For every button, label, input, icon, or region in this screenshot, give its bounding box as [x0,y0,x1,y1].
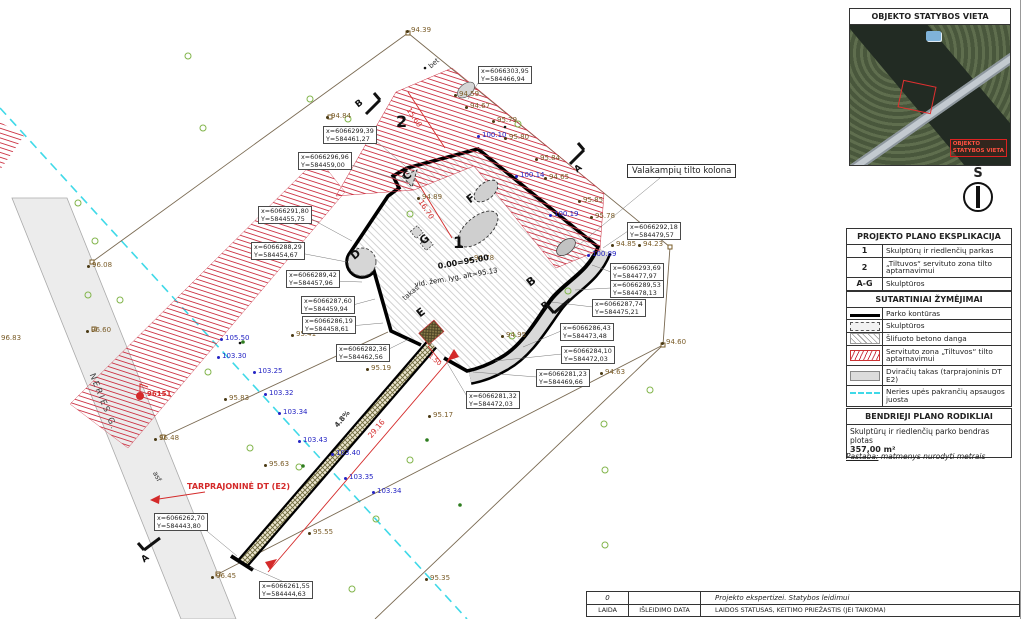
coord-y: Y=584473,48 [563,332,611,340]
spot-elevation: 95.55 [313,528,333,536]
legend-label: Dviračių takas (tarprajoninis DT E2) [883,366,1011,385]
coord-y: Y=584461,27 [326,135,374,143]
coord-y: Y=584457,96 [289,279,337,287]
north-arrow: Š [963,166,993,212]
explication-legend-table: PROJEKTO PLANO EKSPLIKACIJA 1 Skulptūrų … [846,228,1012,407]
coord-y: Y=584462,56 [339,353,387,361]
coord-y: Y=584466,94 [481,75,529,83]
explication-label: „Tiltuvos“ servituto zona tilto aptarnav… [883,258,1011,277]
park-contour-symbol [847,308,883,320]
coord-y: Y=584454,67 [254,251,302,259]
laida-header: LAIDA [587,605,629,617]
coord-x: x=6066291,80 [261,207,309,215]
explication-row: A-G Skulptūros [847,278,1011,291]
coord-y: Y=584469,66 [539,378,587,386]
coord-y: Y=584479,57 [630,231,678,239]
coord-x: x=6066287,60 [304,297,352,305]
spot-elevation: 95.78 [595,212,615,220]
coord-callout: x=6066284,10Y=584472,03 [561,346,615,364]
coord-callout: x=6066281,32Y=584472,03 [466,391,520,409]
building-in-photo [926,31,941,41]
coord-x: x=6066262,70 [157,514,205,522]
legend-row: Neries upės pakrančių apsaugos juosta [847,386,1011,405]
explication-label: Skulptūrų ir riedlenčių parkas [883,245,1011,257]
note: Pastaba: matmenys nurodyti metrais [846,452,985,461]
indicators-box: BENDRIEJI PLANO RODIKLIAI Skulptūrų ir r… [846,408,1012,458]
revision-number: 0 [587,592,629,604]
coord-x: x=6066286,19 [305,317,353,325]
spot-elevation: 95.17 [433,411,453,419]
spot-elevation-blue: 103.32 [269,389,294,397]
coord-callout: x=6066293,69Y=584477,97 [610,263,664,281]
coord-x: x=6066261,55 [262,582,310,590]
inset-title: OBJEKTO STATYBOS VIETA [850,9,1010,25]
spot-elevation: 96.83 [1,334,21,342]
north-circle [963,182,993,212]
revision-date-empty [629,592,701,604]
coord-callout: x=6066299,39Y=584461,27 [323,126,377,144]
spot-elevation: 94.95 [506,331,526,339]
servitude-hatch-symbol [847,346,883,365]
coord-x: x=6066281,23 [539,370,587,378]
dim-arrow-bottom [265,559,277,570]
coord-y: Y=584459,00 [301,161,349,169]
site-outline-in-photo [897,80,936,114]
legend-label: Skulptūros [883,320,1011,332]
coord-callout: x=6066303,95Y=584466,94 [478,66,532,84]
coord-y: Y=584458,61 [305,325,353,333]
coord-callout: x=6066289,53Y=584478,13 [610,280,664,298]
location-inset-box: OBJEKTO STATYBOS VIETA OBJEKTO STATYBOS … [849,8,1011,166]
spot-elevation-blue: 103.40 [336,449,361,457]
spot-elevation: 96.08 [92,261,112,269]
coord-x: x=6066289,42 [289,271,337,279]
explication-key: A-G [847,278,883,290]
concrete-hatch-symbol [847,333,883,345]
indicators-line1: Skulptūrų ir riedlenčių parko bendras pl… [847,425,1011,445]
aerial-photo: OBJEKTO STATYBOS VIETA [850,25,1010,165]
coord-callout: x=6066291,80Y=584455,75 [258,206,312,224]
spot-elevation-blue: 100.89 [592,250,617,258]
coord-callout: x=6066262,70Y=584443,80 [154,513,208,531]
spot-elevation: 94.59 [459,90,479,98]
coord-x: x=6066282,36 [339,345,387,353]
spot-elevation-blue: 105.50 [225,334,250,342]
legend-row: Skulptūros [847,320,1011,333]
spot-elevation-blue: 103.34 [283,408,308,416]
coord-callout: x=6066282,36Y=584462,56 [336,344,390,362]
spot-elevation-blue: 100.10 [482,131,507,139]
coord-x: x=6066296,96 [301,153,349,161]
spot-elevation: 94.63 [605,368,625,376]
coord-x: x=6066281,32 [469,392,517,400]
explication-label: Skulptūros [883,278,1011,290]
coord-callout: x=6066296,96Y=584459,00 [298,152,352,170]
revision-description: Projekto ekspertizei. Statybos leidimui [701,592,1019,604]
zone-1-label: 1 [453,233,464,252]
coord-x: x=6066289,53 [613,281,661,289]
coord-y: Y=584477,97 [613,272,661,280]
legend-label: Neries upės pakrančių apsaugos juosta [883,386,1011,405]
sculpture-symbol [847,320,883,332]
site-tag-line1: OBJEKTO [953,141,1004,148]
spot-elevation-blue: 103.43 [303,436,328,444]
zone-2-label: 2 [396,112,407,131]
coord-x: x=6066286,43 [563,324,611,332]
spot-elevation: 95.85 [583,196,603,204]
note-label: Pastaba: [846,452,878,461]
revision-description-text: Projekto ekspertizei. Statybos leidimui [715,594,849,602]
coord-y: Y=584443,80 [157,522,205,530]
legend-label: Servituto zona „Tiltuvos“ tilto aptarnav… [883,346,1011,365]
coord-y: Y=584472,03 [469,400,517,408]
spot-elevation: 94.65 [549,173,569,181]
geodetic-point-label: 96151 [147,390,171,398]
red-hatch-sliver [0,122,24,170]
explication-row: 2 „Tiltuvos“ servituto zona tilto aptarn… [847,258,1011,278]
north-label: Š [963,166,993,181]
coord-callout: x=6066292,18Y=584479,57 [627,222,681,240]
coord-x: x=6066284,10 [564,347,612,355]
title-block: 0 Projekto ekspertizei. Statybos leidimu… [586,591,1020,617]
explication-key: 2 [847,258,883,277]
coord-x: x=6066299,39 [326,127,374,135]
coord-x: x=6066287,74 [595,300,643,308]
legend-title: SUTARTINIAI ŽYMĖJIMAI [847,291,1011,308]
coord-x: x=6066292,18 [630,223,678,231]
coord-callout: x=6066288,29Y=584454,67 [251,242,305,260]
bridge-column-callout: Valakampių tilto kolona [627,164,736,178]
coord-callout: x=6066287,60Y=584459,94 [301,296,355,314]
coord-x: x=6066303,95 [481,67,529,75]
north-needle [976,186,980,208]
coord-callout: x=6066286,43Y=584473,48 [560,323,614,341]
tarprajonine-route-label: TARPRAJONINĖ DT (E2) [187,482,290,491]
spot-elevation: 95.19 [371,364,391,372]
coord-callout: x=6066289,42Y=584457,96 [286,270,340,288]
legend-label: Parko kontūras [883,308,1011,320]
coord-callout: x=6066261,55Y=584444,63 [259,581,313,599]
revision-row: 0 Projekto ekspertizei. Statybos leidimu… [587,592,1019,605]
coord-x: x=6066288,29 [254,243,302,251]
legend-row: Parko kontūras [847,308,1011,321]
coord-x: x=6066293,69 [613,264,661,272]
spot-elevation: 95.35 [430,574,450,582]
indicators-title: BENDRIEJI PLANO RODIKLIAI [847,409,1011,425]
site-tag: OBJEKTO STATYBOS VIETA [950,139,1007,157]
spot-elevation-blue: 100.14 [520,171,545,179]
status-header: LAIDOS STATUSAS, KEITIMO PRIEŽASTIS (JEI… [701,605,1019,617]
spot-elevation-blue: 103.34 [377,487,402,495]
spot-elevation: 95.63 [269,460,289,468]
spot-elevation: 94.85 [616,240,636,248]
spot-elevation: 94.67 [470,102,490,110]
coord-y: Y=584459,94 [304,305,352,313]
spot-elevation: 96.48 [159,434,179,442]
sheet-frame-right [1020,0,1021,619]
coord-y: Y=584455,75 [261,215,309,223]
explication-key: 1 [847,245,883,257]
coord-callout: x=6066281,23Y=584469,66 [536,369,590,387]
header-row: LAIDA IŠLEIDIMO DATA LAIDOS STATUSAS, KE… [587,605,1019,617]
date-header: IŠLEIDIMO DATA [629,605,701,617]
legend-label: Šlifuoto betono danga [883,333,1011,345]
spot-elevation: 94.39 [411,26,431,34]
coord-y: Y=584478,13 [613,289,661,297]
note-text: matmenys nurodyti metrais [878,452,985,461]
spot-elevation-blue: 100.19 [554,210,579,218]
coord-y: Y=584444,63 [262,590,310,598]
coord-callout: x=6066287,74Y=584475,21 [592,299,646,317]
legend-row: Šlifuoto betono danga [847,333,1011,346]
site-plan-sheet: 2 1 C D E F G B A B A B 0.00=95.00 vid. … [0,0,1024,619]
spot-elevation-blue: 103.35 [349,473,374,481]
spot-elevation: 96.45 [216,572,236,580]
bike-path-symbol [847,366,883,385]
spot-elevation: 95.83 [229,394,249,402]
spot-elevation: 95.84 [540,154,560,162]
coord-y: Y=584475,21 [595,308,643,316]
spot-elevation-blue: 103.30 [222,352,247,360]
coord-y: Y=584472,03 [564,355,612,363]
spot-elevation: 96.60 [91,326,111,334]
legend-row: Servituto zona „Tiltuvos“ tilto aptarnav… [847,346,1011,366]
spot-elevation: 95.79 [497,116,517,124]
spot-elevation: 94.60 [666,338,686,346]
explication-row: 1 Skulptūrų ir riedlenčių parkas [847,245,1011,258]
spot-elevation: 94.84 [331,112,351,120]
legend-row: Dviračių takas (tarprajoninis DT E2) [847,366,1011,386]
site-tag-line2: STATYBOS VIETA [953,148,1004,155]
spot-elevation: 94.23 [643,240,663,248]
spot-elevation: 95.80 [509,133,529,141]
spot-elevation-blue: 103.25 [258,367,283,375]
river-protection-symbol [847,386,883,405]
explication-title: PROJEKTO PLANO EKSPLIKACIJA [847,229,1011,245]
coord-callout: x=6066286,19Y=584458,61 [302,316,356,334]
